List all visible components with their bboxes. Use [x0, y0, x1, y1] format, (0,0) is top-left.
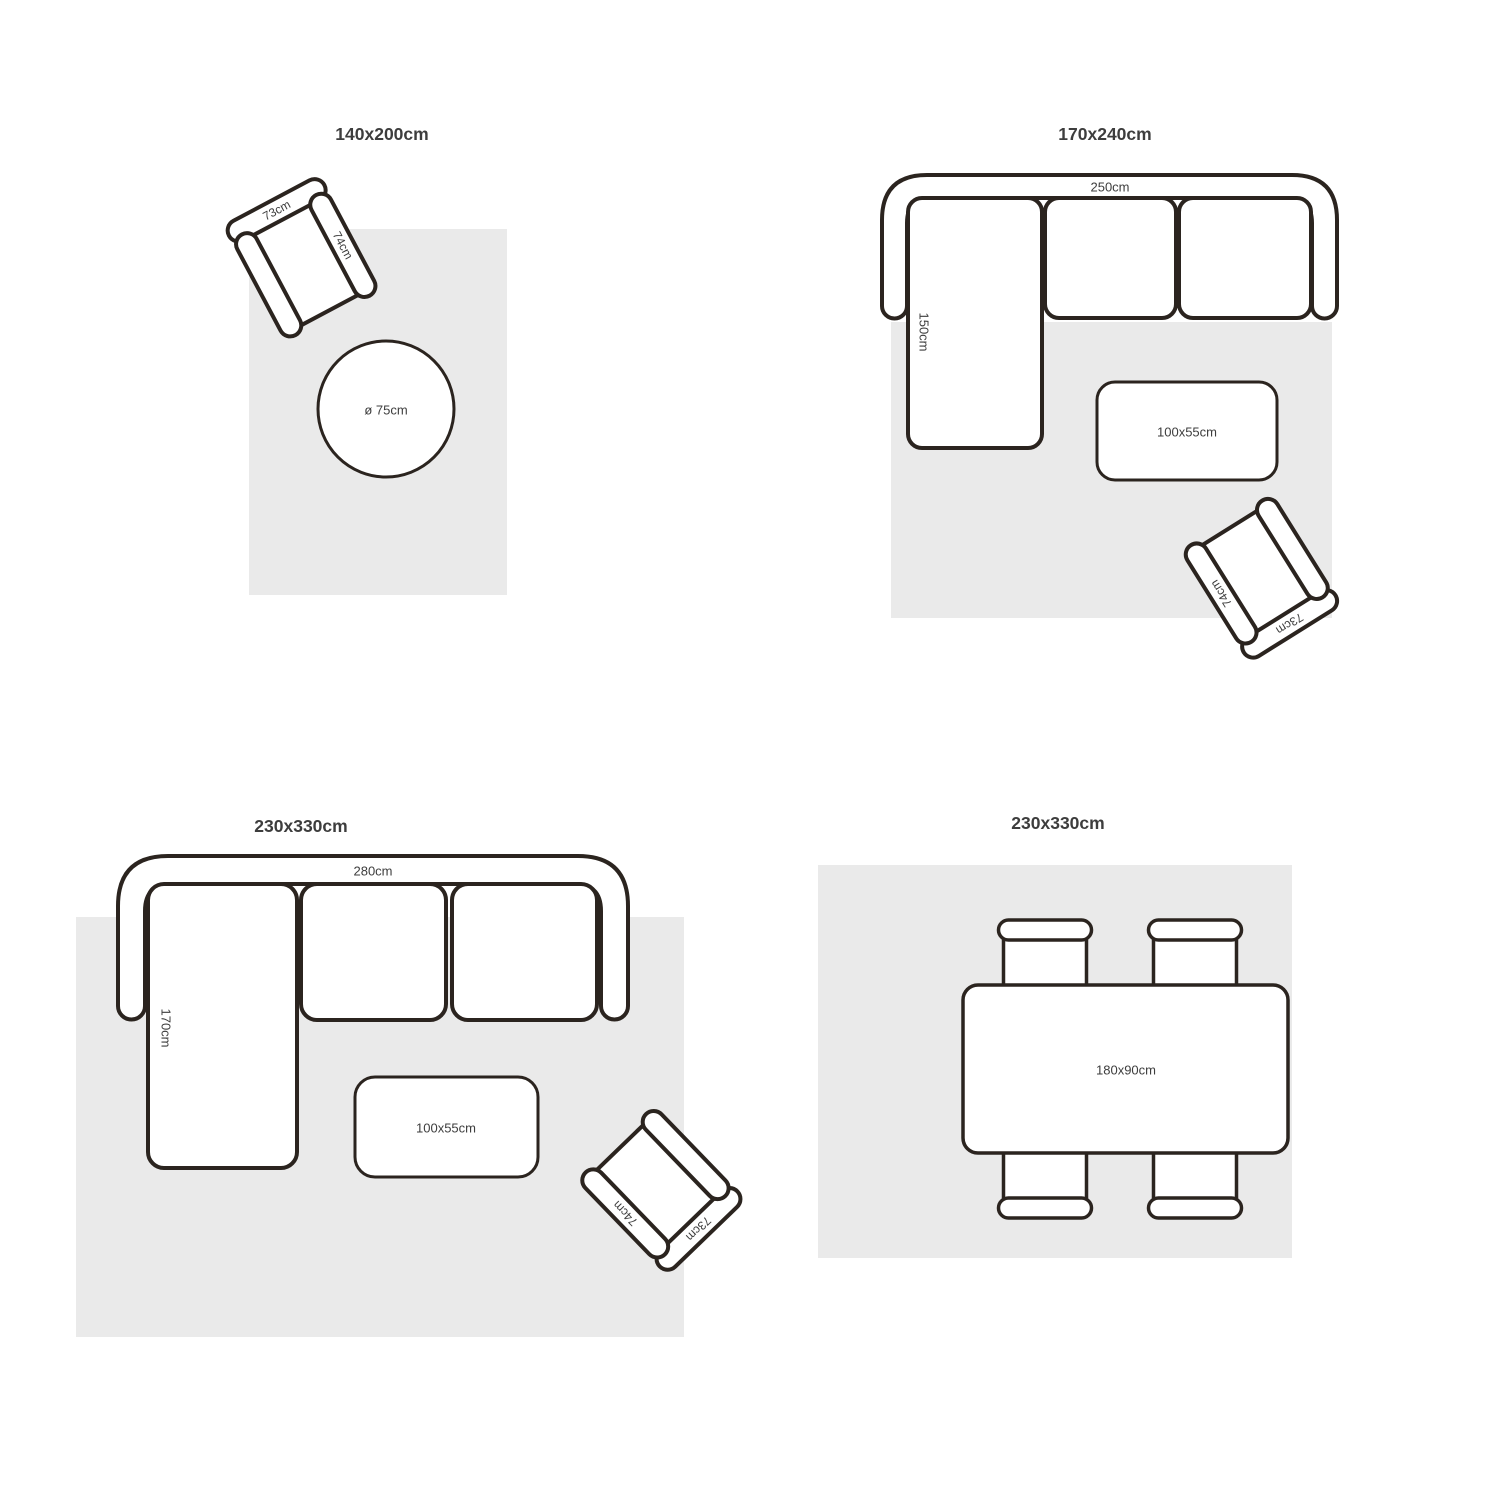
chair-seat	[1004, 936, 1087, 990]
chair-backrest	[999, 1198, 1092, 1218]
sofa-chaise-dimension: 150cm	[917, 312, 932, 351]
coffee-table-dimension: 100x55cm	[416, 1121, 476, 1136]
chair-seat	[1154, 1148, 1237, 1202]
chair-seat	[1154, 936, 1237, 990]
sofa-chaise-dimension: 170cm	[159, 1008, 174, 1047]
panel-title: 140x200cm	[335, 124, 428, 144]
panel-title: 170x240cm	[1058, 124, 1151, 144]
panel-140x200: 140x200cm 73cm 74cm ø 75cm	[224, 124, 507, 595]
dining-table-dimension: 180x90cm	[1096, 1063, 1156, 1078]
panel-170x240: 170x240cm 250cm 150cm 100x55cm 73cm 74cm	[882, 124, 1341, 662]
chair-backrest	[999, 920, 1092, 940]
dining-chair-top-right	[1149, 920, 1242, 990]
sofa-seat-cushion	[452, 884, 597, 1020]
rug-size-guide-canvas: 140x200cm 73cm 74cm ø 75cm 170x240cm 250…	[0, 0, 1500, 1500]
dining-chair-bottom-right	[1149, 1148, 1242, 1218]
sofa-width-dimension: 250cm	[1090, 180, 1129, 195]
panel-230x330-sofa: 230x330cm 280cm 170cm 100x55cm 73cm 74cm	[76, 816, 745, 1337]
panel-230x330-dining: 230x330cm 180x90cm	[818, 813, 1292, 1258]
dining-chair-top-left	[999, 920, 1092, 990]
sofa-seat-cushion	[1179, 198, 1311, 318]
chair-backrest	[1149, 920, 1242, 940]
panel-title: 230x330cm	[254, 816, 347, 836]
chair-backrest	[1149, 1198, 1242, 1218]
panel-title: 230x330cm	[1011, 813, 1104, 833]
sofa-seat-cushion	[301, 884, 446, 1020]
dining-chair-bottom-left	[999, 1148, 1092, 1218]
coffee-table-dimension: 100x55cm	[1157, 425, 1217, 440]
side-table-dimension: ø 75cm	[364, 403, 407, 418]
sofa-width-dimension: 280cm	[353, 864, 392, 879]
sofa-seat-cushion	[1045, 198, 1176, 318]
rug-size-guide: 140x200cm 73cm 74cm ø 75cm 170x240cm 250…	[0, 0, 1500, 1500]
chair-seat	[1004, 1148, 1087, 1202]
